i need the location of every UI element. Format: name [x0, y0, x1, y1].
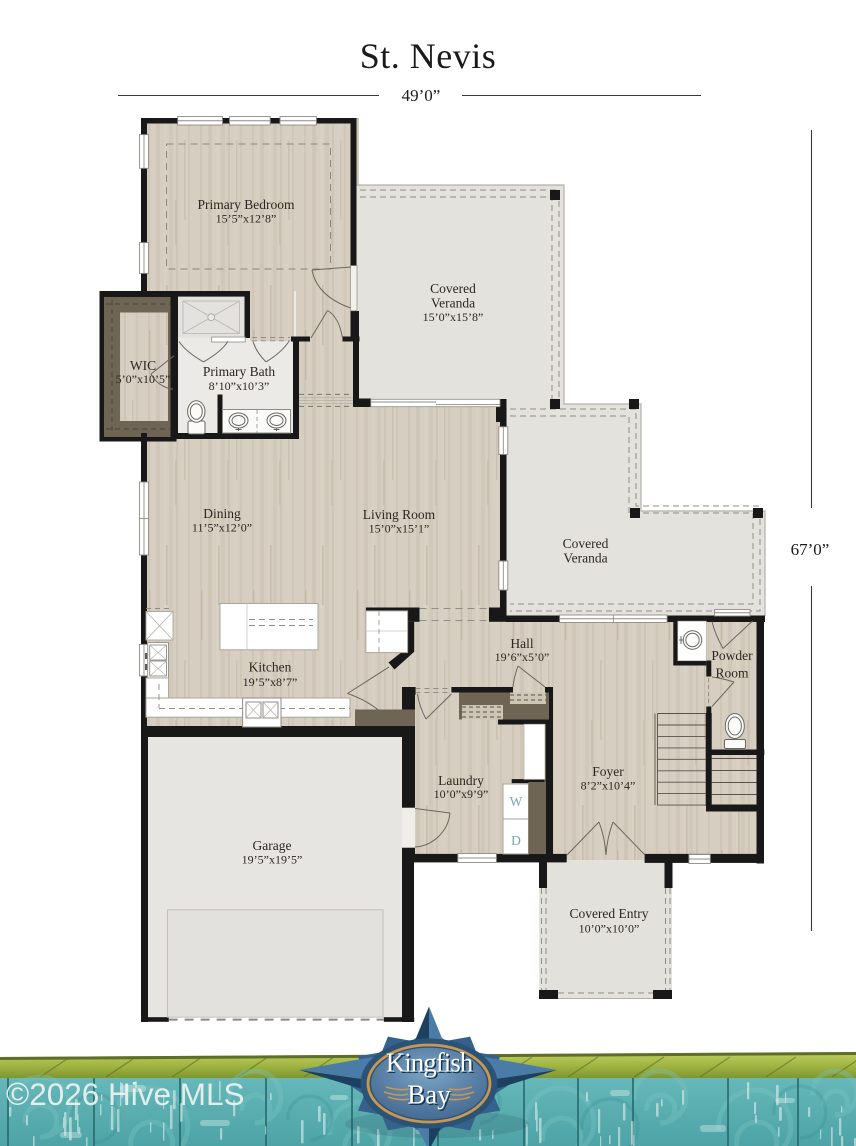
svg-text:D: D	[511, 833, 521, 848]
svg-text:Primary Bedroom: Primary Bedroom	[197, 197, 295, 212]
svg-text:Kitchen: Kitchen	[249, 660, 292, 675]
svg-text:Living Room: Living Room	[363, 507, 436, 522]
svg-text:15’0”x15’1”: 15’0”x15’1”	[369, 522, 430, 536]
svg-text:©2026 Hive MLS: ©2026 Hive MLS	[6, 1076, 245, 1112]
svg-text:Garage: Garage	[253, 838, 292, 853]
svg-text:WIC: WIC	[130, 358, 156, 373]
svg-text:15’0”x15’8”: 15’0”x15’8”	[423, 310, 484, 324]
svg-text:Foyer: Foyer	[592, 764, 624, 779]
svg-text:10’0”x10’0”: 10’0”x10’0”	[579, 922, 640, 936]
svg-text:Hall: Hall	[510, 636, 533, 651]
svg-text:Laundry: Laundry	[438, 773, 484, 788]
svg-text:Kingfish: Kingfish	[386, 1048, 474, 1078]
svg-text:19’6”x5’0”: 19’6”x5’0”	[495, 650, 550, 664]
svg-text:Veranda: Veranda	[431, 296, 475, 311]
svg-text:11’5”x12’0”: 11’5”x12’0”	[192, 521, 252, 535]
svg-text:5’0”x10’5”: 5’0”x10’5”	[116, 372, 171, 386]
svg-text:Covered Entry: Covered Entry	[569, 906, 648, 921]
svg-text:8’10”x10’3”: 8’10”x10’3”	[209, 379, 270, 393]
svg-text:Dining: Dining	[203, 506, 241, 521]
svg-text:W: W	[510, 794, 523, 809]
svg-text:8’2”x10’4”: 8’2”x10’4”	[581, 779, 636, 793]
svg-text:Bay: Bay	[407, 1080, 451, 1110]
svg-text:Covered: Covered	[563, 536, 609, 551]
svg-text:Powder: Powder	[711, 648, 753, 663]
svg-text:19’5”x8’7”: 19’5”x8’7”	[243, 675, 298, 689]
svg-text:49’0”: 49’0”	[402, 86, 441, 105]
svg-text:St. Nevis: St. Nevis	[360, 36, 497, 76]
svg-text:Covered: Covered	[430, 281, 476, 296]
svg-text:Veranda: Veranda	[563, 551, 607, 566]
svg-text:Primary Bath: Primary Bath	[203, 364, 276, 379]
svg-text:15’5”x12’8”: 15’5”x12’8”	[216, 212, 277, 226]
svg-text:19’5”x19’5”: 19’5”x19’5”	[242, 853, 303, 867]
svg-text:Room: Room	[715, 666, 749, 681]
svg-text:67’0”: 67’0”	[791, 540, 830, 559]
svg-text:10’0”x9’9”: 10’0”x9’9”	[434, 787, 489, 801]
